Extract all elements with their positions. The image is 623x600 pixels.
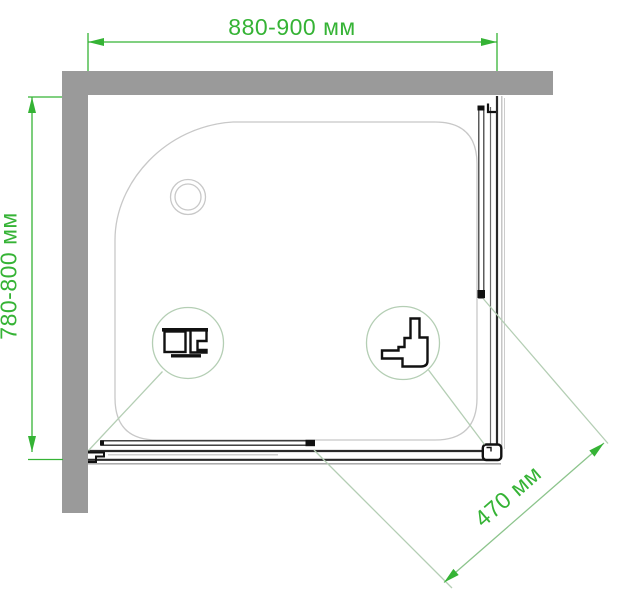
right-glass-panel <box>478 106 486 299</box>
right-side-frame <box>488 96 505 449</box>
arrow-up-icon <box>28 97 36 113</box>
wall-profile-bracket <box>488 104 496 113</box>
width-dimension-label: 880-900 мм <box>228 14 355 40</box>
shower-tray <box>115 122 477 440</box>
depth-dimension: 780-800 мм <box>0 97 63 460</box>
arrow-right-icon <box>481 38 497 46</box>
detail-circle-left <box>153 308 224 379</box>
door-opening-dimension-label: 470 мм <box>469 460 546 532</box>
width-dimension: 880-900 мм <box>88 14 497 71</box>
corner-connector <box>483 445 502 461</box>
depth-dimension-label: 780-800 мм <box>0 212 22 339</box>
left-wall <box>62 71 88 513</box>
arrow-down-icon <box>28 436 36 452</box>
arrow-left-icon <box>88 38 104 46</box>
top-wall <box>62 71 553 95</box>
drawing-svg: 880-900 мм 780-800 мм 470 мм <box>0 0 623 600</box>
bottom-rail <box>88 451 501 464</box>
detail-circle-right <box>367 307 440 380</box>
sliding-door-panel <box>100 440 315 446</box>
technical-drawing: 880-900 мм 780-800 мм 470 мм <box>0 0 623 600</box>
